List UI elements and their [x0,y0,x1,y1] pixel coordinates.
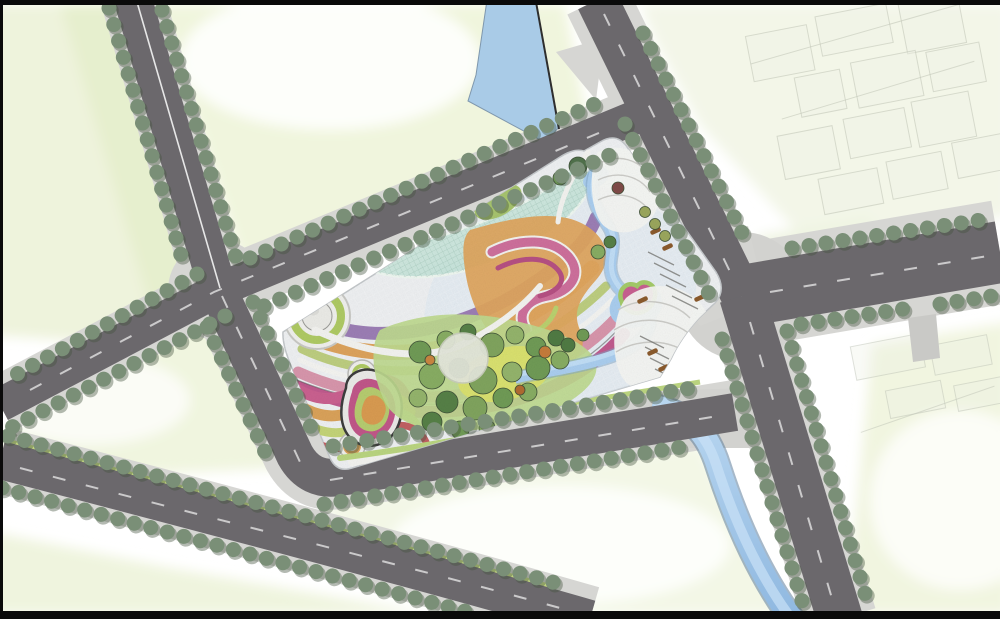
site-plan-rendering [0,0,1000,619]
frame-left [0,0,3,619]
driveway-stub [908,314,940,362]
building-footprint [794,69,847,117]
master-plan-canvas [0,0,1000,619]
frame-bottom [0,611,1000,619]
frame-top [0,0,1000,5]
